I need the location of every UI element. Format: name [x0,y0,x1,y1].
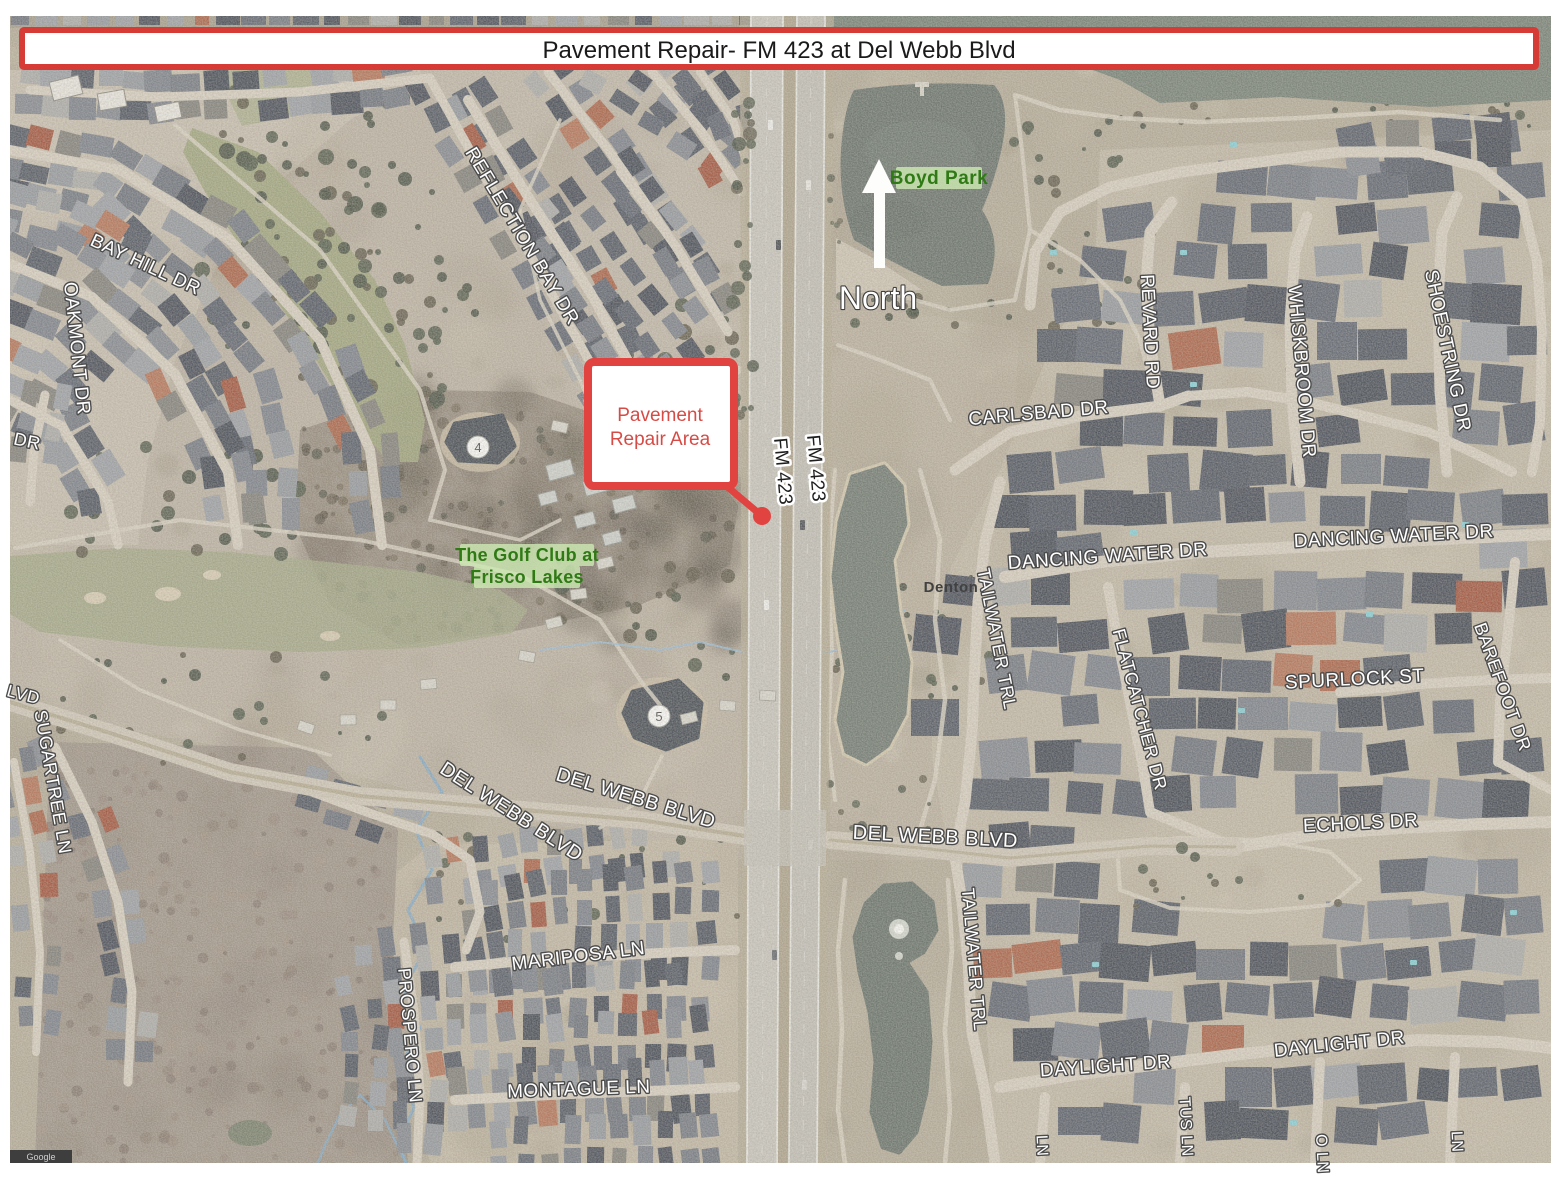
svg-text:The Golf Club at: The Golf Club at [455,545,599,565]
svg-text:North: North [839,280,917,316]
svg-text:Denton: Denton [924,579,979,596]
svg-text:Boyd Park: Boyd Park [890,168,988,189]
svg-text:LN: LN [1447,1131,1465,1153]
svg-text:TUS LN: TUS LN [1175,1096,1195,1157]
svg-text:Frisco Lakes: Frisco Lakes [470,567,584,587]
svg-text:Google: Google [26,1152,55,1162]
svg-text:Repair Area: Repair Area [610,429,711,450]
svg-text:LN: LN [1032,1135,1050,1157]
svg-text:O LN: O LN [1312,1134,1331,1174]
svg-text:Pavement Repair- FM 423 at Del: Pavement Repair- FM 423 at Del Webb Blvd [542,37,1015,64]
svg-text:Pavement: Pavement [617,405,703,426]
